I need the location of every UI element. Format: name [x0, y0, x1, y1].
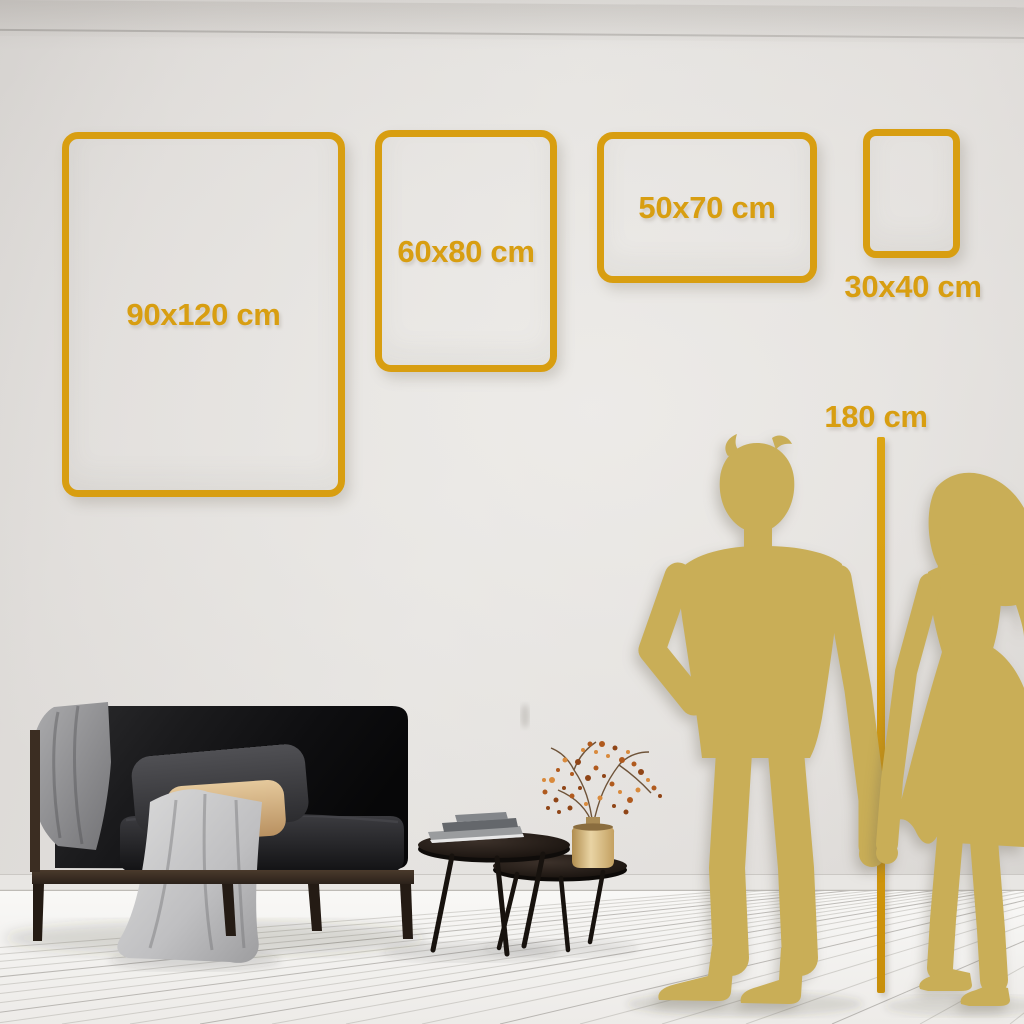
size-guide-scene: 90x120 cm 60x80 cm 50x70 cm 30x40 cm 180… — [0, 0, 1024, 1024]
woman-silhouette — [876, 473, 1024, 1006]
man-silhouette — [652, 434, 885, 1004]
couple-silhouettes — [0, 0, 1024, 1024]
